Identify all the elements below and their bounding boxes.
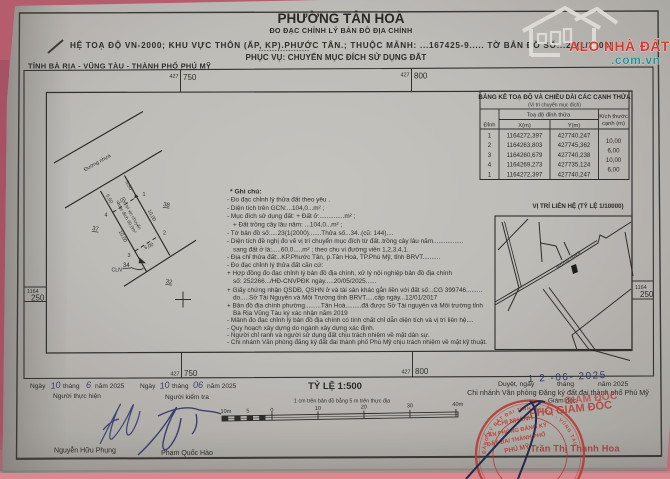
svg-text:+ Giấy chứng nhận QSDĐ, QSHN ở: + Giấy chứng nhận QSDĐ, QSHN ở và tài sả…: [227, 285, 482, 294]
svg-text:750: 750: [183, 73, 197, 82]
svg-text:Người kiểm tra: Người kiểm tra: [165, 393, 209, 401]
svg-text:1164269,273: 1164269,273: [507, 162, 543, 169]
svg-text:Người thực hiện: Người thực hiện: [53, 393, 101, 400]
svg-text:- Mục đích sử dụng đất: + Đất: - Mục đích sử dụng đất: + Đất ở:........…: [227, 211, 356, 220]
svg-text:năm 2025: năm 2025: [207, 383, 237, 390]
svg-text:10,00: 10,00: [606, 157, 622, 164]
svg-text:10m: 10m: [220, 409, 231, 415]
svg-text:+ Đất trồng cây lâu năm: ...1: + Đất trồng cây lâu năm: ...104,0...m² ;: [233, 220, 342, 229]
svg-text:800: 800: [414, 72, 428, 81]
svg-text:750: 750: [184, 369, 198, 378]
svg-text:1164272,397: 1164272,397: [507, 133, 543, 140]
svg-text:Ngày: Ngày: [30, 383, 46, 390]
svg-text:427740,238: 427740,238: [558, 152, 591, 159]
svg-text:* Ghi chú:: * Ghi chú:: [230, 189, 262, 196]
svg-text:(Vị trí chuyển mục đích): (Vị trí chuyển mục đích): [528, 102, 581, 109]
svg-text:1164263,803: 1164263,803: [507, 142, 543, 149]
svg-text:1 cm trên bản đồ bằng 5 m trên: 1 cm trên bản đồ bằng 5 m trên thực địa: [294, 398, 390, 405]
svg-text:3: 3: [128, 253, 131, 259]
svg-text:ALO NHÀ ĐẤT: ALO NHÀ ĐẤT: [569, 38, 670, 54]
svg-text:Chi nhánh Văn phòng Đăng ký đấ: Chi nhánh Văn phòng Đăng ký đất đai thàn…: [467, 388, 649, 397]
svg-text:1: 1: [143, 192, 146, 198]
svg-text:Ngày: Ngày: [140, 383, 156, 390]
svg-text:BẢNG KÊ TOẠ ĐỘ VÀ CHIỀU DÀI CÁ: BẢNG KÊ TOẠ ĐỘ VÀ CHIỀU DÀI CÁC CẠNH THỬ…: [478, 93, 631, 101]
svg-text:số: 252266.../HĐ-CNVPĐK ngày..: số: 252266.../HĐ-CNVPĐK ngày.....20/05/2…: [233, 276, 377, 285]
svg-text:- Đo đạc chỉnh lý thửa đất the: - Đo đạc chỉnh lý thửa đất theo yêu .: [227, 195, 330, 204]
svg-text:Toạ độ đỉnh thửa: Toạ độ đỉnh thửa: [527, 112, 571, 119]
svg-text:Trần Thị Thanh Hoa: Trần Thị Thanh Hoa: [530, 444, 620, 454]
svg-text:06: 06: [193, 380, 203, 390]
svg-text:ĐO ĐẠC CHỈNH LÝ BẢN ĐỒ ĐỊA CHÍ: ĐO ĐẠC CHỈNH LÝ BẢN ĐỒ ĐỊA CHÍNH: [269, 25, 412, 35]
svg-text:427: 427: [402, 370, 411, 376]
svg-text:- Tờ bản đồ số:....23(1(2000).: - Tờ bản đồ số:....23(1(2000).......Thửa…: [227, 228, 394, 237]
svg-text:1: 1: [488, 133, 492, 140]
svg-text:cạnh (m): cạnh (m): [602, 121, 625, 127]
svg-text:tháng: tháng: [63, 383, 80, 390]
svg-text:+ Bản đồ địa chính phường.....: + Bản đồ địa chính phường.........Tân Ho…: [227, 301, 483, 310]
svg-text:1164260,679: 1164260,679: [507, 152, 543, 159]
svg-text:1164272,397: 1164272,397: [507, 171, 543, 178]
svg-text:427: 427: [170, 74, 179, 80]
svg-text:- Chi nhánh Văn phòng đăng ký: - Chi nhánh Văn phòng đăng ký đất đai th…: [227, 337, 487, 346]
svg-text:800: 800: [415, 367, 429, 376]
svg-text:6,00: 6,00: [607, 167, 620, 174]
svg-text:427745,362: 427745,362: [558, 142, 591, 149]
svg-text:- Diện tích trên GCN:...104,0.: - Diện tích trên GCN:...104,0...m² ;: [227, 205, 325, 212]
svg-text:Kích thước: Kích thước: [599, 114, 628, 120]
svg-text:PHỤC VỤ: CHUYỂN MỤC ĐÍCH SỬ DỤ: PHỤC VỤ: CHUYỂN MỤC ĐÍCH SỬ DỤNG ĐẤT: [246, 52, 427, 62]
svg-text:5: 5: [246, 409, 249, 415]
svg-text:2: 2: [163, 231, 166, 237]
svg-text:.com.vn: .com.vn: [611, 53, 661, 67]
svg-text:+ Hợp đồng đo đạc chỉnh lý bản: + Hợp đồng đo đạc chỉnh lý bản đồ địa ch…: [227, 268, 452, 277]
svg-text:năm 2025: năm 2025: [95, 383, 125, 390]
svg-text:- Người chỉ ranh và người sử d: - Người chỉ ranh và người sử dụng đất ch…: [227, 330, 430, 339]
svg-text:40m: 40m: [452, 402, 463, 408]
svg-text:Phạm Quốc Hào: Phạm Quốc Hào: [161, 448, 213, 457]
svg-text:427740,247: 427740,247: [558, 171, 591, 178]
svg-text:Bà Rịa Vũng Tàu ký xác nhận nă: Bà Rịa Vũng Tàu ký xác nhận năm 2019: [233, 310, 348, 317]
svg-text:10: 10: [159, 380, 170, 391]
svg-text:Y(m): Y(m): [568, 123, 581, 129]
svg-text:PHƯỜNG TÂN HOÀ: PHƯỜNG TÂN HOÀ: [278, 11, 405, 26]
svg-text:- Quy hoạch xây dựng do ngành: - Quy hoạch xây dựng do ngành xây dựng x…: [227, 325, 375, 332]
svg-text:Đỉnh: Đỉnh: [484, 122, 496, 129]
svg-text:- Mảnh đo đạc chỉnh lý bản đồ: - Mảnh đo đạc chỉnh lý bản đồ địa chính …: [227, 315, 474, 324]
svg-text:TỶ LỆ 1:500: TỶ LỆ 1:500: [308, 380, 362, 392]
svg-text:10: 10: [315, 406, 321, 412]
svg-text:0: 0: [270, 408, 273, 414]
svg-text:4: 4: [488, 162, 492, 169]
svg-text:30: 30: [407, 403, 413, 409]
svg-text:427740,247: 427740,247: [558, 133, 591, 140]
svg-text:tháng: tháng: [172, 383, 189, 390]
svg-text:- Địa chỉ thửa đất:..KP.Phước: - Địa chỉ thửa đất:..KP.Phước Tân, p.Tân…: [227, 252, 440, 261]
svg-text:CLN: CLN: [112, 268, 123, 274]
svg-text:427: 427: [171, 372, 180, 378]
svg-text:427: 427: [401, 73, 410, 79]
svg-text:427735,124: 427735,124: [558, 162, 591, 169]
svg-text:250: 250: [31, 294, 45, 303]
svg-text:do.....Sở Tài Nguyên và Môi Tr: do.....Sở Tài Nguyên và Môi Trường tỉnh …: [233, 293, 438, 302]
svg-text:6,00: 6,00: [607, 148, 620, 155]
svg-text:3: 3: [488, 152, 492, 159]
svg-text:1: 1: [488, 171, 492, 178]
svg-text:năm 2025: năm 2025: [598, 381, 628, 388]
svg-text:6: 6: [86, 380, 91, 390]
svg-text:TỈNH BÀ RỊA - VŨNG TÀU - THÀNH: TỈNH BÀ RỊA - VŨNG TÀU - THÀNH PHỐ PHÚ M…: [28, 61, 211, 71]
svg-text:4: 4: [105, 213, 108, 219]
svg-text:20: 20: [361, 405, 367, 411]
svg-text:10: 10: [50, 380, 61, 391]
svg-text:VỊ TRÍ LIÊN HỆ (TỶ LỆ 1/10000): VỊ TRÍ LIÊN HỆ (TỶ LỆ 1/10000): [532, 202, 623, 210]
svg-text:X(m): X(m): [518, 123, 531, 129]
svg-text:10,00: 10,00: [606, 138, 622, 145]
svg-text:- Đo đạc chỉnh lý thửa đất căn: - Đo đạc chỉnh lý thửa đất căn cứ:: [227, 260, 324, 269]
svg-text:250: 250: [640, 290, 654, 299]
svg-text:sang đất ở là:.....60,0.....m²: sang đất ở là:.....60,0.....m² ; theo ch…: [233, 244, 409, 253]
svg-text:Nguyễn Hữu Phụng: Nguyễn Hữu Phụng: [54, 446, 116, 455]
svg-text:- Diện tích đề nghị đo vẽ vị t: - Diện tích đề nghị đo vẽ vị trí chuyển …: [227, 236, 463, 245]
svg-text:2: 2: [488, 142, 492, 149]
